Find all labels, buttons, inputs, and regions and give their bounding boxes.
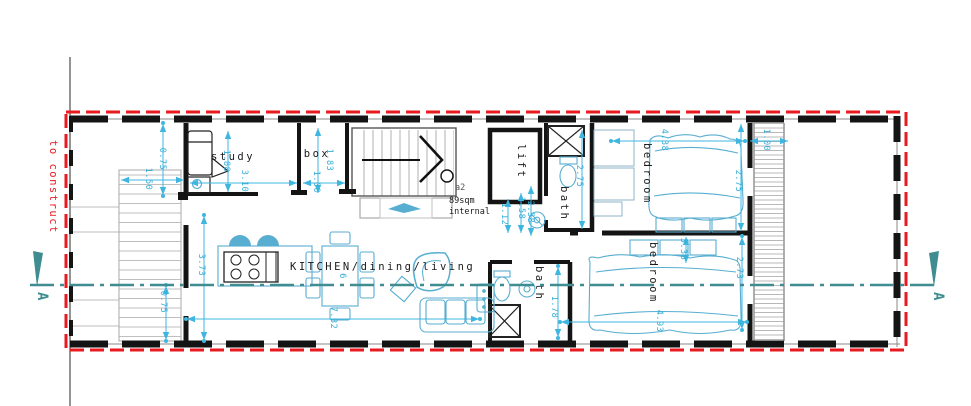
dim-bedroom-top-depth: 2.75 [733,170,743,192]
floor-plan-drawing: 0.75 1.50 1.88 3.10 1.83 1.00 1.12 1.58 … [0,0,971,406]
room-label-kitchen: KITCHEN/dining/living [290,261,475,273]
room-label-bath-top: bath [558,186,570,221]
section-arrow-right-icon [929,251,939,287]
dim-bedroom-top-width: 4.38 [659,129,669,151]
dim-bath-top-depth: 2.75 [574,165,584,187]
stair-direction-icon [388,203,421,213]
bar-stool-icon [229,235,251,246]
dining-table-seats-label: 6 [337,273,347,279]
room-label-bedroom-top: bedroom [641,143,653,205]
room-label-bath-bottom: bath [533,266,545,301]
unit-annotation: a2 89sqm internal [449,183,490,217]
dim-hall-b: 1.58 [516,197,526,219]
room-label-study: study [211,151,255,163]
bedroom-bottom-furniture [589,240,741,334]
section-label-left: A [34,292,50,301]
dim-living-width: 7.32 [328,307,338,329]
dim-study-width: 3.10 [239,170,249,192]
dim-bedroom-bottom-closet: 3.38 [678,238,688,260]
terrace-deck-hatch [754,123,784,341]
floor-plan-canvas: 0.75 1.50 1.88 3.10 1.83 1.00 1.12 1.58 … [0,0,971,406]
dim-rear-step: 0.75 [158,291,168,313]
dim-living-depth: 3.73 [196,254,206,276]
internal-stair [352,128,456,218]
room-label-bedroom-bottom: bedroom [647,242,659,304]
dim-stair-width: 1.50 [143,168,153,190]
dim-box-width: 1.00 [311,171,321,193]
service-shaft-top [548,126,584,156]
room-label-lift: lift [515,144,527,179]
lift-shaft-walls [490,130,540,202]
dim-bedroom-bottom-depth: 2.73 [734,257,744,279]
unit-area: 89sqm [449,196,475,206]
dim-bath-bottom-depth: 1.78 [549,296,559,318]
dim-terrace-strip: 1.00 [761,129,771,151]
unit-area-note: internal [449,207,490,217]
dim-bedroom-bottom-width: 4.93 [654,310,664,332]
room-label-box: box [304,148,330,160]
site-note: to construct [47,140,59,234]
dim-entry-step: 0.75 [157,148,167,170]
dim-hall-c: 2.58 [525,201,535,223]
bar-stool-icon [257,235,279,246]
section-arrow-left-icon [33,251,43,287]
dim-hall-a: 1.12 [499,203,509,225]
section-label-right: A [930,292,946,301]
unit-code: a2 [455,183,465,193]
